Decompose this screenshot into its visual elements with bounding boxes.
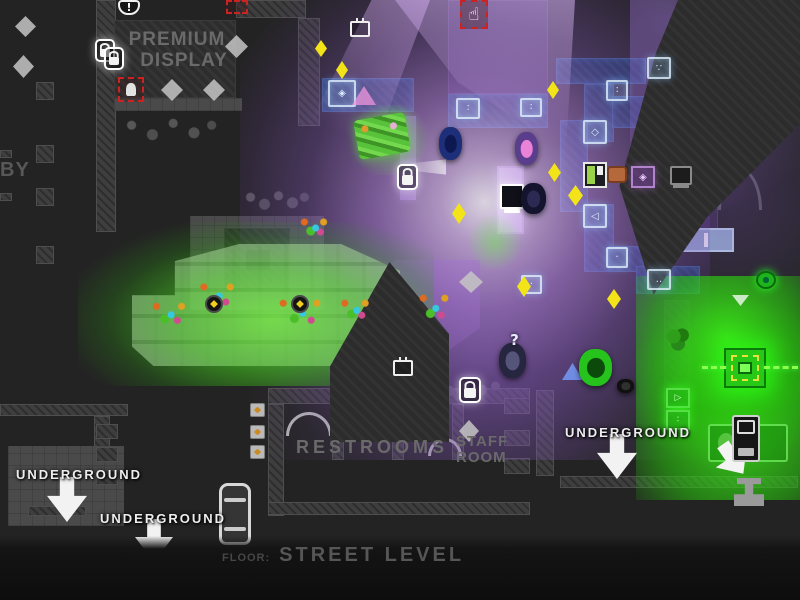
char-creature-green[interactable] xyxy=(579,349,612,386)
room-label-restrooms: RESTROOMS xyxy=(296,438,448,457)
char-guard-blue[interactable] xyxy=(439,127,462,160)
marker-triangle-down xyxy=(732,295,749,306)
laser-beam-left xyxy=(702,366,726,369)
vending-machine[interactable] xyxy=(583,162,607,188)
lock-icon-1b[interactable] xyxy=(104,47,124,70)
room-label-premium-display: PREMIUM DISPLAY xyxy=(122,30,232,71)
display-case-horn[interactable]: ◁ xyxy=(583,204,607,228)
floor-diamond-2 xyxy=(13,55,34,78)
floor-diamond-3 xyxy=(161,79,183,101)
display-case-d[interactable]: · xyxy=(606,247,628,268)
garden-flowers-3 xyxy=(148,298,190,326)
underground-label-1: UNDERGROUND xyxy=(16,467,142,482)
question-mark: ? xyxy=(507,331,522,348)
laser-display-case[interactable] xyxy=(724,348,766,388)
char-guard-dark[interactable] xyxy=(521,183,546,214)
char-lookout-pink[interactable] xyxy=(515,132,538,165)
floor-diamond-1 xyxy=(15,16,36,37)
motion-sensor-icon[interactable] xyxy=(756,271,776,289)
trophy-hand-icon[interactable]: ☝ xyxy=(460,0,488,29)
underground-label-3: UNDERGROUND xyxy=(565,425,691,440)
display-case-b[interactable]: ∶ xyxy=(520,98,542,117)
floor-bar: FLOOR: STREET LEVEL xyxy=(0,536,800,600)
display-case-red-small[interactable] xyxy=(226,0,248,14)
laser-beam-right xyxy=(764,366,798,369)
power-plug-icon-2[interactable] xyxy=(393,360,413,376)
gem-8[interactable] xyxy=(607,289,621,309)
gem-6[interactable] xyxy=(548,163,561,182)
premium-display-line1: PREMIUM xyxy=(122,30,232,51)
object-layer: !☝◈∶∶∵∶◇◁·‥·◈▷∶? xyxy=(0,0,800,600)
coin-slot-3[interactable] xyxy=(250,445,265,459)
lock-icon-3[interactable] xyxy=(459,377,481,403)
lock-icon-2[interactable] xyxy=(397,164,418,190)
garden-flowers-4 xyxy=(338,296,372,320)
atm-machine[interactable] xyxy=(732,415,760,462)
coin-2[interactable] xyxy=(291,295,309,313)
underground-arrow-3 xyxy=(597,434,637,479)
display-case-c[interactable]: ∶ xyxy=(606,80,628,101)
staff-room-line1: STAFF xyxy=(456,434,508,450)
floor-diamond-4 xyxy=(203,79,225,101)
computer-icon-dim[interactable] xyxy=(670,166,692,185)
alarm-icon[interactable]: ! xyxy=(118,0,140,15)
display-case-gem-left[interactable]: ◈ xyxy=(328,80,356,107)
armchair xyxy=(607,166,627,183)
gem-7[interactable] xyxy=(568,185,583,206)
statue-pedestal xyxy=(734,478,764,506)
money-pile[interactable] xyxy=(353,112,411,160)
char-small-dark[interactable] xyxy=(617,379,634,393)
gem-2[interactable] xyxy=(336,61,348,79)
coin-1[interactable] xyxy=(205,295,223,313)
floor-label-name: STREET LEVEL xyxy=(279,544,464,567)
floor-label-prefix: FLOOR: xyxy=(222,552,270,564)
room-label-partial: BY xyxy=(0,160,30,182)
display-case-a[interactable]: ∶ xyxy=(456,98,480,119)
gem-4[interactable] xyxy=(452,203,466,224)
green-display-case-1[interactable]: ▷ xyxy=(666,388,690,408)
gem-1[interactable] xyxy=(315,40,327,57)
gem-3[interactable] xyxy=(547,81,559,99)
display-case-red-urn[interactable] xyxy=(118,77,144,102)
game-map: !☝◈∶∶∵∶◇◁·‥·◈▷∶? PREMIUM DISPLAY RESTROO… xyxy=(0,0,800,600)
coin-slot-1[interactable] xyxy=(250,403,265,417)
garden-flowers-5 xyxy=(416,288,452,322)
display-case-mask[interactable]: ‥ xyxy=(647,269,671,290)
garden-flowers-6 xyxy=(298,216,330,236)
staff-room-line2: ROOM xyxy=(456,450,508,466)
coin-slot-2[interactable] xyxy=(250,425,265,439)
power-plug-icon-1[interactable] xyxy=(350,21,370,37)
display-case-purple[interactable]: ◈ xyxy=(631,166,655,188)
display-case-gem[interactable]: ◇ xyxy=(583,120,607,144)
potted-plant xyxy=(664,326,692,352)
display-case-constellation[interactable]: ∵ xyxy=(647,57,671,79)
premium-display-line2: DISPLAY xyxy=(122,51,232,72)
underground-arrow-1 xyxy=(47,477,87,522)
room-label-staff-room: STAFF ROOM xyxy=(456,434,508,466)
underground-label-2: UNDERGROUND xyxy=(100,511,226,526)
floor-indicator: FLOOR: STREET LEVEL xyxy=(222,544,464,567)
floor-diamond-6 xyxy=(459,271,483,293)
